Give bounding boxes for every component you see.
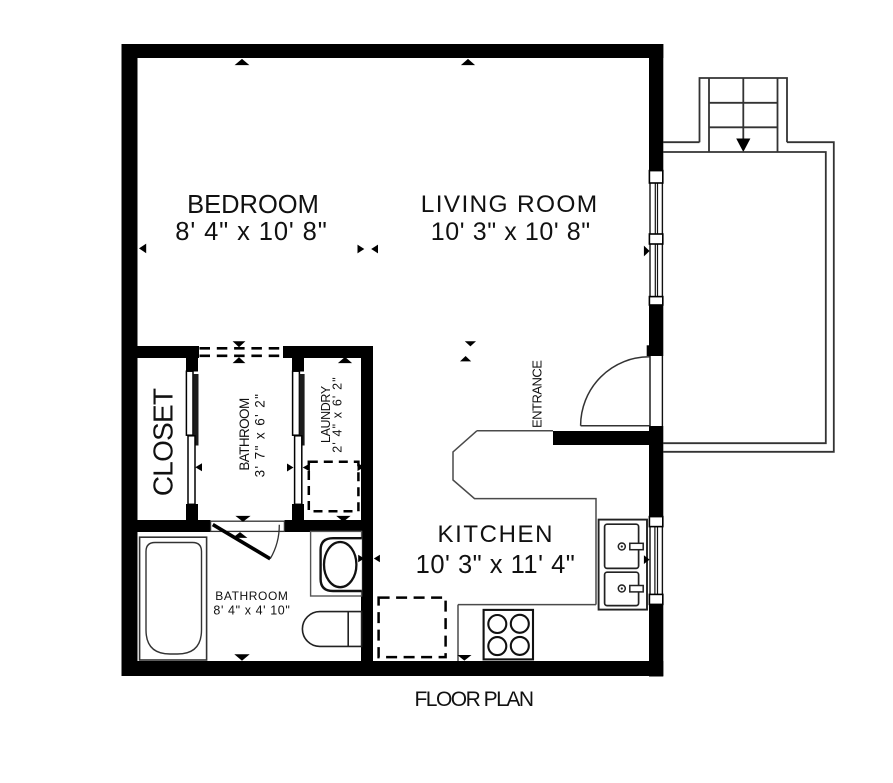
svg-text:3' 7" x 6' 2": 3' 7" x 6' 2" [253, 393, 268, 478]
svg-text:KITCHEN: KITCHEN [438, 521, 555, 548]
svg-text:10' 3" x 11' 4": 10' 3" x 11' 4" [416, 551, 576, 579]
svg-text:CLOSET: CLOSET [148, 388, 179, 496]
svg-text:BATHROOM: BATHROOM [237, 398, 252, 471]
svg-text:2' 4" x 6' 2": 2' 4" x 6' 2" [331, 376, 345, 453]
svg-text:ENTRANCE: ENTRANCE [530, 360, 545, 428]
svg-text:BEDROOM: BEDROOM [187, 191, 319, 219]
svg-text:8' 4" x 10' 8": 8' 4" x 10' 8" [175, 218, 327, 246]
svg-text:10' 3" x 10' 8": 10' 3" x 10' 8" [431, 218, 591, 246]
svg-text:BATHROOM: BATHROOM [215, 589, 288, 603]
svg-text:8' 4" x 4' 10": 8' 4" x 4' 10" [213, 604, 290, 618]
svg-text:LIVING ROOM: LIVING ROOM [421, 191, 599, 218]
svg-text:FLOOR PLAN: FLOOR PLAN [414, 688, 532, 711]
